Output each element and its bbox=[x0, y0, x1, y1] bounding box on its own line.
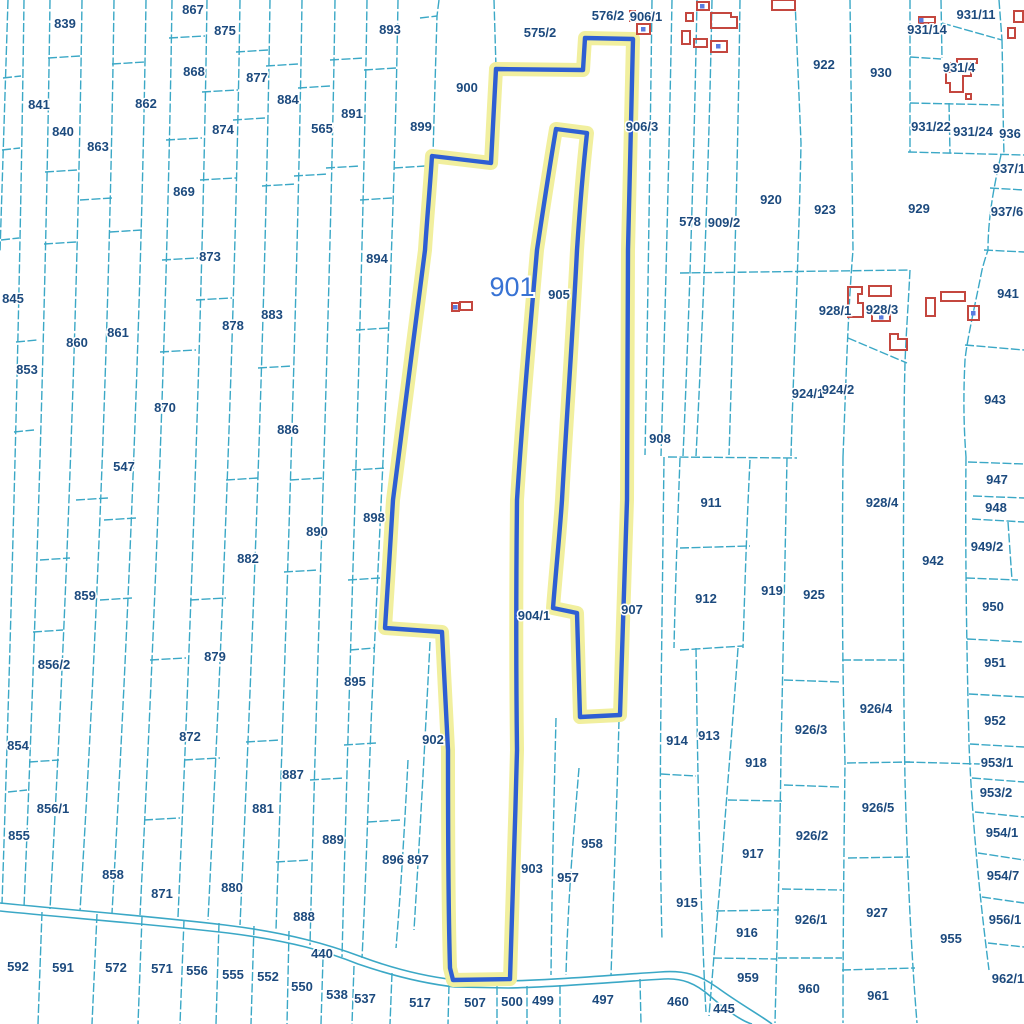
parcel-label[interactable]: 953/1 bbox=[981, 755, 1014, 770]
parcel-label[interactable]: 855 bbox=[8, 828, 30, 843]
building-point-icon bbox=[641, 27, 646, 32]
parcel-label[interactable]: 873 bbox=[199, 249, 221, 264]
parcel-label[interactable]: 926/5 bbox=[862, 800, 895, 815]
parcel-label[interactable]: 863 bbox=[87, 139, 109, 154]
parcel-label[interactable]: 959 bbox=[737, 970, 759, 985]
parcel-label[interactable]: 887 bbox=[282, 767, 304, 782]
parcel-label[interactable]: 591 bbox=[52, 960, 74, 975]
parcel-label[interactable]: 893 bbox=[379, 22, 401, 37]
parcel-label[interactable]: 860 bbox=[66, 335, 88, 350]
parcel-label[interactable]: 592 bbox=[7, 959, 29, 974]
parcel-label[interactable]: 926/4 bbox=[860, 701, 893, 716]
parcel-label[interactable]: 914 bbox=[666, 733, 688, 748]
parcel-label[interactable]: 954/1 bbox=[986, 825, 1019, 840]
parcel-label[interactable]: 840 bbox=[52, 124, 74, 139]
building-footprint bbox=[869, 286, 891, 296]
parcel-label[interactable]: 926/1 bbox=[795, 912, 828, 927]
building-footprint bbox=[941, 292, 965, 301]
parcel-label[interactable]: 575/2 bbox=[524, 25, 557, 40]
parcel-label[interactable]: 948 bbox=[985, 500, 1007, 515]
parcel-label[interactable]: 878 bbox=[222, 318, 244, 333]
parcel-label[interactable]: 916 bbox=[736, 925, 758, 940]
parcel-label[interactable]: 565 bbox=[311, 121, 333, 136]
parcel-label[interactable]: 949/2 bbox=[971, 539, 1004, 554]
parcel-label[interactable]: 926/2 bbox=[796, 828, 829, 843]
parcel-label[interactable]: 931/4 bbox=[943, 60, 976, 75]
parcel-label[interactable]: 900 bbox=[456, 80, 478, 95]
parcel-label[interactable]: 500 bbox=[501, 994, 523, 1009]
building-footprint bbox=[772, 0, 795, 10]
parcel-label[interactable]: 499 bbox=[532, 993, 554, 1008]
parcel-label[interactable]: 936 bbox=[999, 126, 1021, 141]
parcel-label[interactable]: 924/2 bbox=[822, 382, 855, 397]
building-footprint bbox=[926, 298, 935, 316]
parcel-label[interactable]: 891 bbox=[341, 106, 363, 121]
parcel-label[interactable]: 882 bbox=[237, 551, 259, 566]
parcel-label[interactable]: 871 bbox=[151, 886, 173, 901]
parcel-label[interactable]: 907 bbox=[621, 602, 643, 617]
parcel-label[interactable]: 869 bbox=[173, 184, 195, 199]
parcel-label[interactable]: 880 bbox=[221, 880, 243, 895]
parcel-label[interactable]: 919 bbox=[761, 583, 783, 598]
parcel-label[interactable]: 917 bbox=[742, 846, 764, 861]
parcel-label[interactable]: 572 bbox=[105, 960, 127, 975]
parcel-label[interactable]: 955 bbox=[940, 931, 962, 946]
parcel-label[interactable]: 922 bbox=[813, 57, 835, 72]
parcel-label[interactable]: 896 bbox=[382, 852, 404, 867]
parcel-label[interactable]: 556 bbox=[186, 963, 208, 978]
parcel-label[interactable]: 547 bbox=[113, 459, 135, 474]
parcel-label[interactable]: 874 bbox=[212, 122, 234, 137]
parcel-label[interactable]: 912 bbox=[695, 591, 717, 606]
parcel-label[interactable]: 902 bbox=[422, 732, 444, 747]
parcel-label[interactable]: 890 bbox=[306, 524, 328, 539]
parcel-label[interactable]: 954/7 bbox=[987, 868, 1020, 883]
building-footprint bbox=[966, 94, 971, 99]
parcel-label[interactable]: 538 bbox=[326, 987, 348, 1002]
parcel-label[interactable]: 947 bbox=[986, 472, 1008, 487]
parcel-label[interactable]: 957 bbox=[557, 870, 579, 885]
building-footprint bbox=[682, 31, 690, 44]
building-point-icon bbox=[716, 44, 721, 49]
parcel-label[interactable]: 894 bbox=[366, 251, 388, 266]
parcel-label[interactable]: 950 bbox=[982, 599, 1004, 614]
parcel-label[interactable]: 895 bbox=[344, 674, 366, 689]
parcel-label[interactable]: 854 bbox=[7, 738, 29, 753]
parcel-label[interactable]: 931/11 bbox=[956, 7, 995, 22]
parcel-label[interactable]: 445 bbox=[713, 1001, 735, 1016]
parcel-label[interactable]: 911 bbox=[701, 495, 722, 510]
parcel-label[interactable]: 858 bbox=[102, 867, 124, 882]
parcel-label[interactable]: 552 bbox=[257, 969, 279, 984]
parcel-label[interactable]: 897 bbox=[407, 852, 429, 867]
parcel-label[interactable]: 931/24 bbox=[953, 124, 994, 139]
parcel-label[interactable]: 952 bbox=[984, 713, 1006, 728]
map-canvas[interactable]: 8398418408628638678758688778748845658918… bbox=[0, 0, 1024, 1024]
parcel-label[interactable]: 861 bbox=[107, 325, 129, 340]
parcel-label[interactable]: 958 bbox=[581, 836, 603, 851]
parcel-label[interactable]: 853 bbox=[16, 362, 38, 377]
parcel-label[interactable]: 571 bbox=[151, 961, 173, 976]
parcel-label[interactable]: 870 bbox=[154, 400, 176, 415]
parcel-label[interactable]: 440 bbox=[311, 946, 333, 961]
parcel-label[interactable]: 877 bbox=[246, 70, 268, 85]
parcel-label[interactable]: 497 bbox=[592, 992, 614, 1007]
parcel-label[interactable]: 875 bbox=[214, 23, 236, 38]
parcel-label[interactable]: 906/1 bbox=[630, 9, 663, 24]
parcel-label[interactable]: 879 bbox=[204, 649, 226, 664]
building-footprint bbox=[890, 334, 907, 350]
parcel-label[interactable]: 913 bbox=[698, 728, 720, 743]
parcel-label[interactable]: 886 bbox=[277, 422, 299, 437]
building-footprint bbox=[711, 13, 737, 28]
parcel-label[interactable]: 951 bbox=[984, 655, 1006, 670]
parcel-label[interactable]: 862 bbox=[135, 96, 157, 111]
parcel-label[interactable]: 926/3 bbox=[795, 722, 828, 737]
building-footprint bbox=[460, 302, 472, 310]
parcel-label[interactable]: 927 bbox=[866, 905, 888, 920]
parcel-label[interactable]: 928/4 bbox=[866, 495, 899, 510]
parcel-label[interactable]: 904/1 bbox=[518, 608, 551, 623]
parcel-label[interactable]: 884 bbox=[277, 92, 299, 107]
parcel-label[interactable]: 883 bbox=[261, 307, 283, 322]
parcel-label[interactable]: 909/2 bbox=[708, 215, 741, 230]
parcel-label[interactable]: 576/2 bbox=[592, 8, 625, 23]
parcel-label[interactable]: 925 bbox=[803, 587, 825, 602]
building-point-icon bbox=[971, 311, 976, 316]
parcel-label[interactable]: 905 bbox=[548, 287, 570, 302]
parcel-label[interactable]: 859 bbox=[74, 588, 96, 603]
parcel-label[interactable]: 845 bbox=[2, 291, 24, 306]
parcel-label[interactable]: 517 bbox=[409, 995, 431, 1010]
parcel-label[interactable]: 856/1 bbox=[37, 801, 70, 816]
parcel-label[interactable]: 899 bbox=[410, 119, 432, 134]
parcel-label[interactable]: 937/1 bbox=[993, 161, 1024, 176]
parcel-label[interactable]: 903 bbox=[521, 861, 543, 876]
parcel-label[interactable]: 929 bbox=[908, 201, 930, 216]
parcel-label[interactable]: 889 bbox=[322, 832, 344, 847]
parcel-label[interactable]: 961 bbox=[867, 988, 889, 1003]
parcel-label[interactable]: 908 bbox=[649, 431, 671, 446]
building-footprint bbox=[686, 13, 693, 21]
parcel-label[interactable]: 460 bbox=[667, 994, 689, 1009]
parcel-label[interactable]: 943 bbox=[984, 392, 1006, 407]
parcel-label[interactable]: 839 bbox=[54, 16, 76, 31]
parcel-label[interactable]: 931/14 bbox=[907, 22, 948, 37]
building-point-icon bbox=[453, 305, 458, 310]
parcel-label[interactable]: 841 bbox=[28, 97, 50, 112]
parcel-label[interactable]: 872 bbox=[179, 729, 201, 744]
building-footprint bbox=[1014, 11, 1023, 22]
parcel-label[interactable]: 898 bbox=[363, 510, 385, 525]
parcel-label[interactable]: 537 bbox=[354, 991, 376, 1006]
parcel-label[interactable]: 942 bbox=[922, 553, 944, 568]
parcel-label[interactable]: 956/1 bbox=[989, 912, 1022, 927]
parcel-label[interactable]: 931/22 bbox=[911, 119, 951, 134]
parcel-label[interactable]: 856/2 bbox=[38, 657, 71, 672]
parcel-label[interactable]: 868 bbox=[183, 64, 205, 79]
parcel-label[interactable]: 906/3 bbox=[626, 119, 659, 134]
parcel-label[interactable]: 924/1 bbox=[792, 386, 825, 401]
parcel-label[interactable]: 928/1 bbox=[819, 303, 852, 318]
parcel-label[interactable]: 941 bbox=[997, 286, 1019, 301]
parcel-label[interactable]: 867 bbox=[182, 2, 204, 17]
parcel-label[interactable]: 918 bbox=[745, 755, 767, 770]
parcel-label[interactable]: 507 bbox=[464, 995, 486, 1010]
parcel-label[interactable]: 550 bbox=[291, 979, 313, 994]
building-footprint bbox=[1008, 28, 1015, 38]
selected-parcel-label[interactable]: 901 bbox=[489, 272, 534, 302]
parcel-label[interactable]: 930 bbox=[870, 65, 892, 80]
parcel-label[interactable]: 953/2 bbox=[980, 785, 1013, 800]
parcel-label[interactable]: 888 bbox=[293, 909, 315, 924]
parcel-label[interactable]: 555 bbox=[222, 967, 244, 982]
parcel-label[interactable]: 962/1 bbox=[992, 971, 1024, 986]
parcel-label[interactable]: 578 bbox=[679, 214, 701, 229]
building-point-icon bbox=[700, 4, 705, 9]
parcel-label[interactable]: 881 bbox=[252, 801, 274, 816]
parcel-label[interactable]: 920 bbox=[760, 192, 782, 207]
cadastral-map[interactable]: 8398418408628638678758688778748845658918… bbox=[0, 0, 1024, 1024]
parcel-label[interactable]: 923 bbox=[814, 202, 836, 217]
parcel-label[interactable]: 937/6 bbox=[991, 204, 1024, 219]
parcel-label[interactable]: 960 bbox=[798, 981, 820, 996]
parcel-label[interactable]: 928/3 bbox=[866, 302, 899, 317]
parcel-label[interactable]: 915 bbox=[676, 895, 698, 910]
